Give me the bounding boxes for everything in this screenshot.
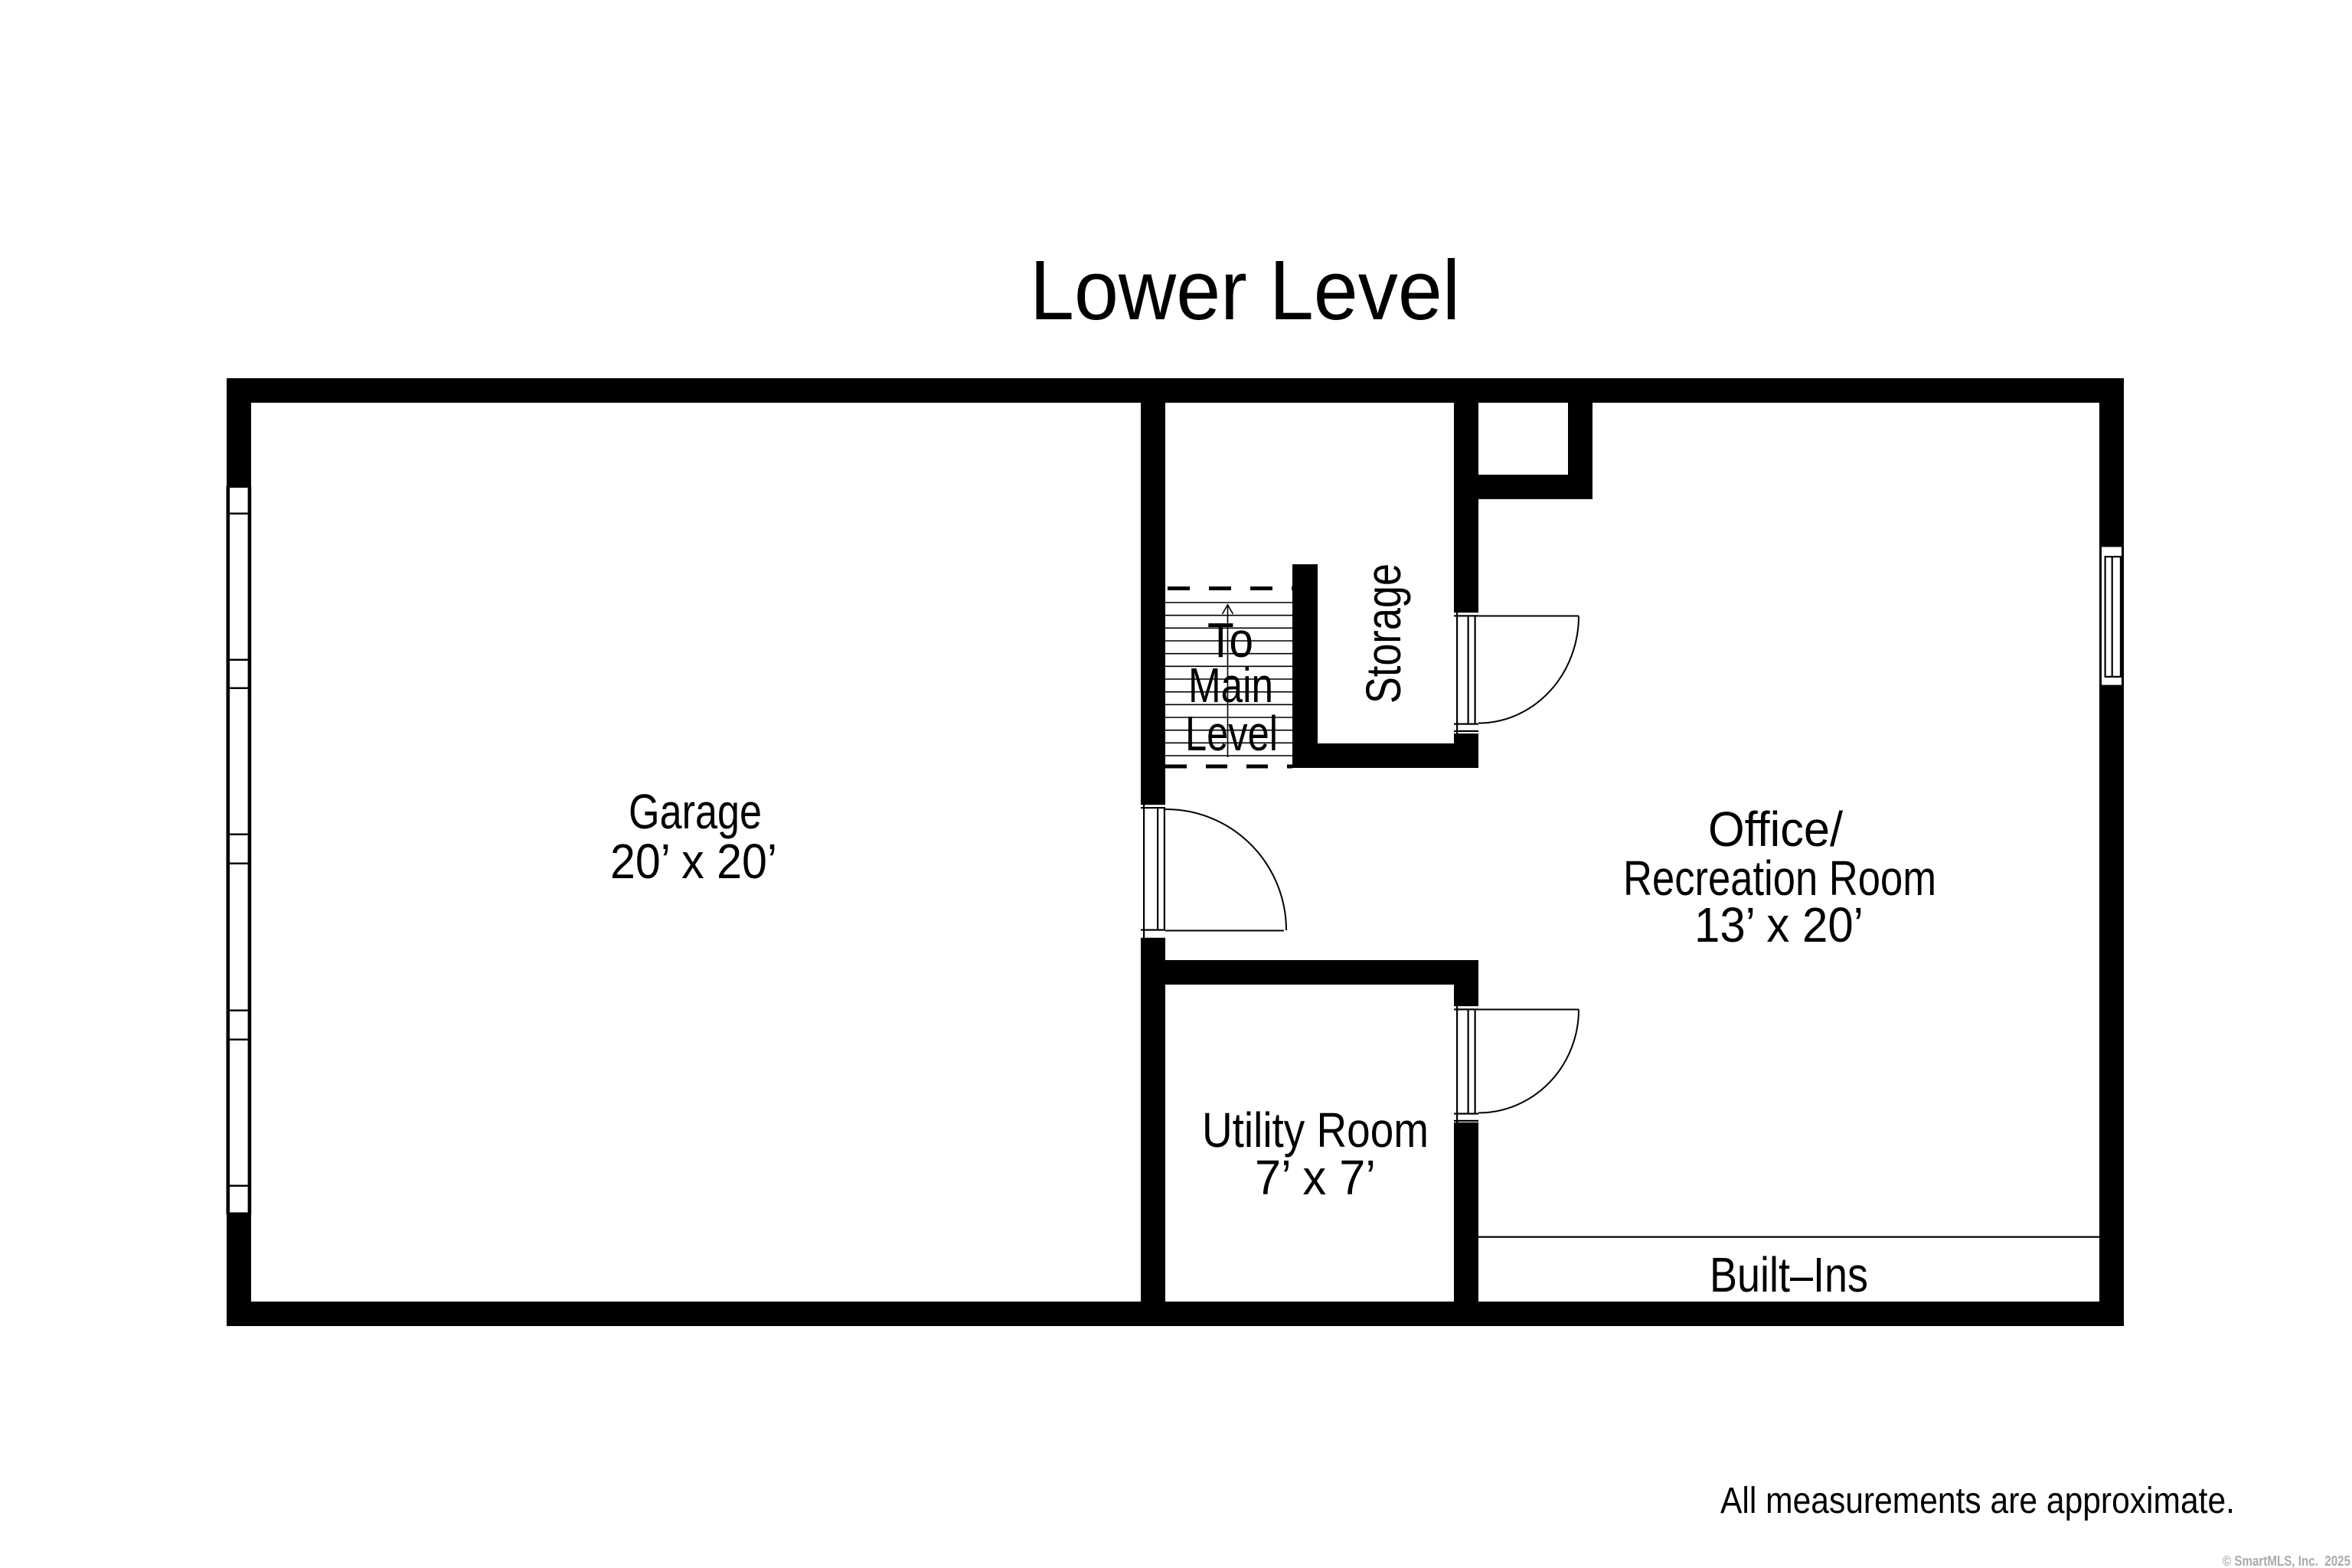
svg-text:Main: Main: [1188, 658, 1273, 713]
svg-text:Built–Ins: Built–Ins: [1710, 1247, 1868, 1302]
svg-text:20’ x 20’: 20’ x 20’: [610, 834, 777, 889]
svg-text:All measurements are approxima: All measurements are approximate.: [1720, 1481, 2235, 1521]
svg-text:13’ x 20’: 13’ x 20’: [1694, 897, 1864, 952]
svg-text:Garage: Garage: [629, 784, 762, 839]
svg-text:© SmartMLS, Inc. 2025: © SmartMLS, Inc. 2025: [2223, 1553, 2350, 1568]
svg-text:Storage: Storage: [1356, 563, 1411, 704]
svg-text:Office/: Office/: [1708, 802, 1843, 857]
svg-text:7’ x 7’: 7’ x 7’: [1255, 1150, 1376, 1205]
svg-text:Level: Level: [1185, 706, 1278, 761]
svg-text:Lower Level: Lower Level: [1030, 243, 1460, 338]
